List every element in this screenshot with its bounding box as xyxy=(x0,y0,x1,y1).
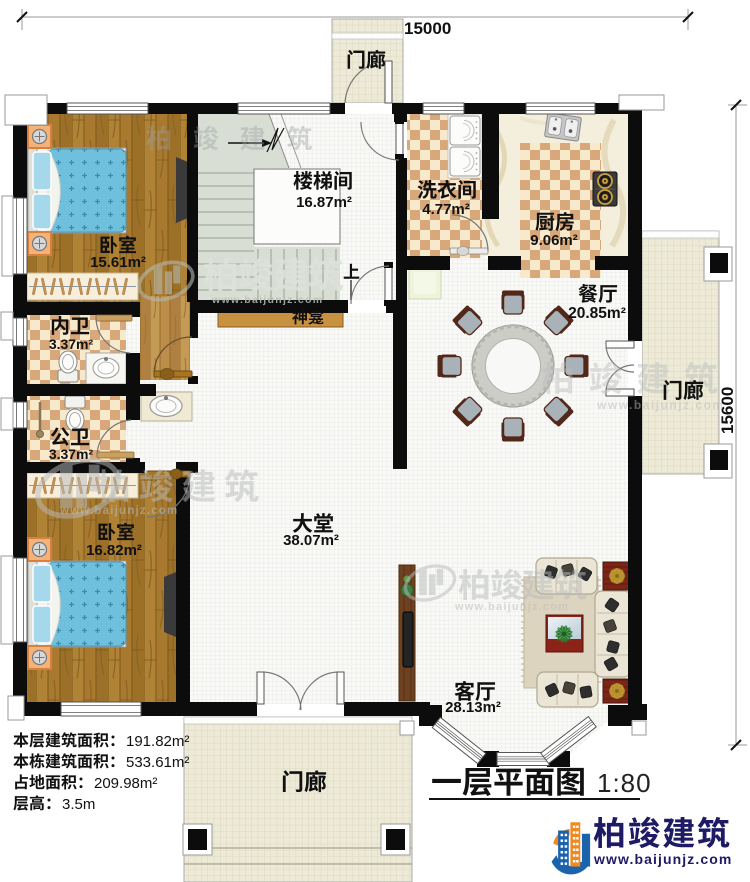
svg-text:4.77m²: 4.77m² xyxy=(422,201,470,218)
svg-text:3.37m²: 3.37m² xyxy=(49,336,94,352)
svg-text:3.37m²: 3.37m² xyxy=(49,446,94,462)
svg-text:533.61m²: 533.61m² xyxy=(126,754,189,771)
svg-text:16.87m²: 16.87m² xyxy=(296,194,352,211)
svg-text:28.13m²: 28.13m² xyxy=(445,699,501,716)
svg-text:9.06m²: 9.06m² xyxy=(530,232,578,249)
svg-text:www.baijunjz.com: www.baijunjz.com xyxy=(59,505,178,517)
svg-text:www.baijunjz.com: www.baijunjz.com xyxy=(211,294,323,306)
svg-text:www.baijunjz.com: www.baijunjz.com xyxy=(593,851,732,867)
svg-text:191.82m²: 191.82m² xyxy=(126,733,189,750)
svg-text:1:80: 1:80 xyxy=(597,768,652,798)
svg-text:3.5m: 3.5m xyxy=(62,796,95,813)
svg-text:20.85m²: 20.85m² xyxy=(568,305,626,322)
svg-text:15.61m²: 15.61m² xyxy=(90,254,146,271)
svg-text:15000: 15000 xyxy=(404,19,451,38)
svg-text:www.baijunjz.com: www.baijunjz.com xyxy=(454,601,569,613)
svg-text:209.98m²: 209.98m² xyxy=(94,775,157,792)
svg-text:www.baijunjz.com: www.baijunjz.com xyxy=(596,398,725,412)
svg-text:16.82m²: 16.82m² xyxy=(86,542,142,559)
svg-text:38.07m²: 38.07m² xyxy=(283,532,339,549)
